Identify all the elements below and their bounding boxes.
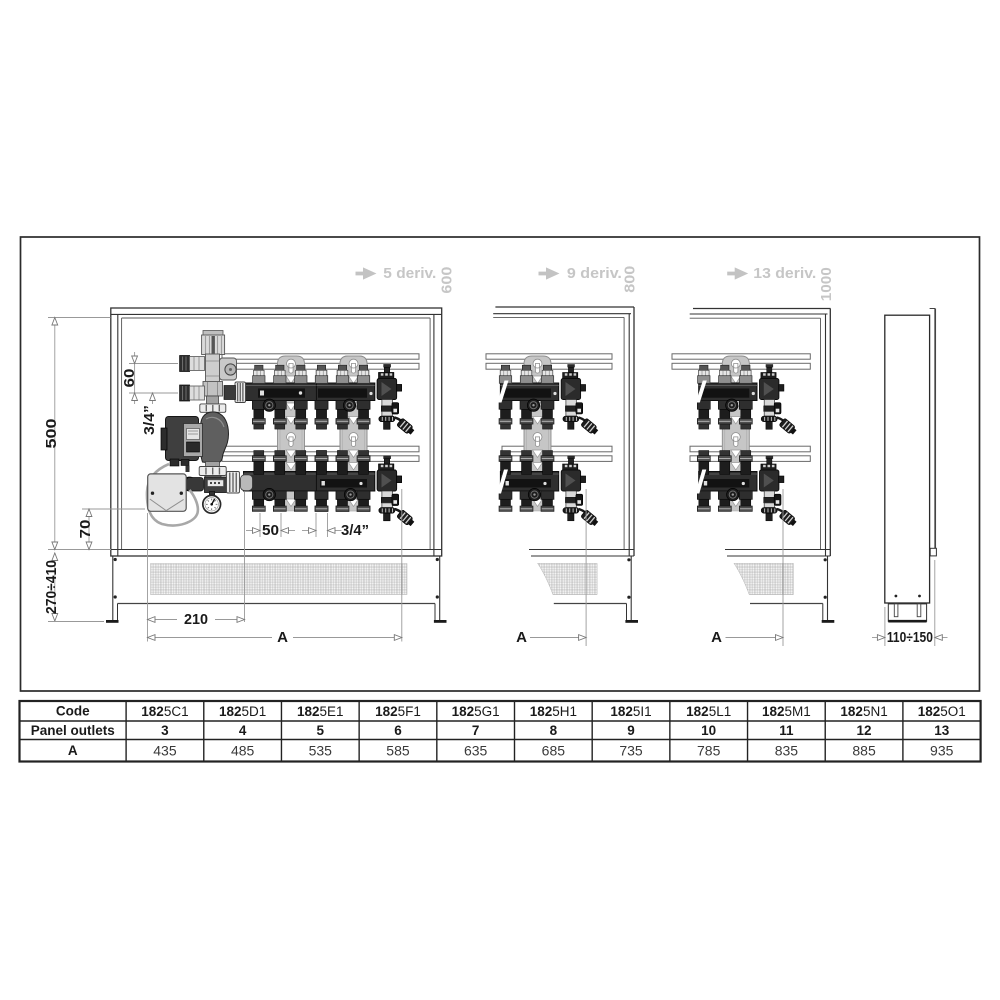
svg-text:270÷410: 270÷410 <box>43 560 60 614</box>
svg-text:1825H1: 1825H1 <box>530 704 577 719</box>
svg-text:A: A <box>277 629 288 646</box>
svg-text:3/4”: 3/4” <box>141 405 158 435</box>
svg-text:735: 735 <box>619 743 643 759</box>
svg-text:6: 6 <box>394 723 402 738</box>
svg-text:535: 535 <box>309 743 333 759</box>
svg-text:60: 60 <box>121 369 138 388</box>
svg-text:A: A <box>711 629 722 646</box>
svg-text:7: 7 <box>472 723 480 738</box>
svg-text:Panel outlets: Panel outlets <box>31 723 115 738</box>
svg-text:585: 585 <box>386 743 410 759</box>
svg-text:1825F1: 1825F1 <box>375 704 421 719</box>
svg-text:8: 8 <box>550 723 558 738</box>
svg-text:635: 635 <box>464 743 488 759</box>
svg-text:4: 4 <box>239 723 247 738</box>
svg-text:935: 935 <box>930 743 954 759</box>
svg-text:9: 9 <box>627 723 635 738</box>
svg-text:1825M1: 1825M1 <box>762 704 811 719</box>
svg-text:11: 11 <box>779 723 794 738</box>
svg-text:3: 3 <box>161 723 169 738</box>
svg-text:13: 13 <box>934 723 950 738</box>
svg-text:785: 785 <box>697 743 721 759</box>
svg-text:1825D1: 1825D1 <box>219 704 266 719</box>
svg-text:50: 50 <box>262 522 279 539</box>
svg-text:3/4”: 3/4” <box>341 522 369 539</box>
svg-text:13 deriv.: 13 deriv. <box>753 265 816 282</box>
svg-text:1825C1: 1825C1 <box>141 704 188 719</box>
svg-text:835: 835 <box>775 743 799 759</box>
svg-text:435: 435 <box>153 743 177 759</box>
svg-text:500: 500 <box>43 419 60 449</box>
svg-text:A: A <box>516 629 527 646</box>
svg-text:A: A <box>68 743 78 758</box>
svg-text:1825I1: 1825I1 <box>610 704 651 719</box>
svg-text:485: 485 <box>231 743 255 759</box>
svg-text:9 deriv.: 9 deriv. <box>567 265 622 282</box>
svg-text:1825L1: 1825L1 <box>686 704 731 719</box>
svg-text:70: 70 <box>77 520 94 539</box>
svg-text:10: 10 <box>701 723 716 738</box>
svg-text:885: 885 <box>852 743 876 759</box>
svg-text:1000: 1000 <box>818 267 835 301</box>
svg-text:685: 685 <box>542 743 566 759</box>
svg-text:1825E1: 1825E1 <box>297 704 344 719</box>
svg-text:1825O1: 1825O1 <box>918 704 966 719</box>
svg-text:600: 600 <box>438 267 455 294</box>
svg-text:1825G1: 1825G1 <box>452 704 500 719</box>
svg-text:800: 800 <box>622 266 639 293</box>
svg-text:110÷150: 110÷150 <box>887 629 933 646</box>
svg-text:12: 12 <box>857 723 872 738</box>
svg-text:5: 5 <box>317 723 325 738</box>
svg-text:210: 210 <box>184 611 208 628</box>
svg-text:5 deriv.: 5 deriv. <box>383 265 436 282</box>
svg-text:1825N1: 1825N1 <box>840 704 887 719</box>
svg-text:Code: Code <box>56 704 90 719</box>
